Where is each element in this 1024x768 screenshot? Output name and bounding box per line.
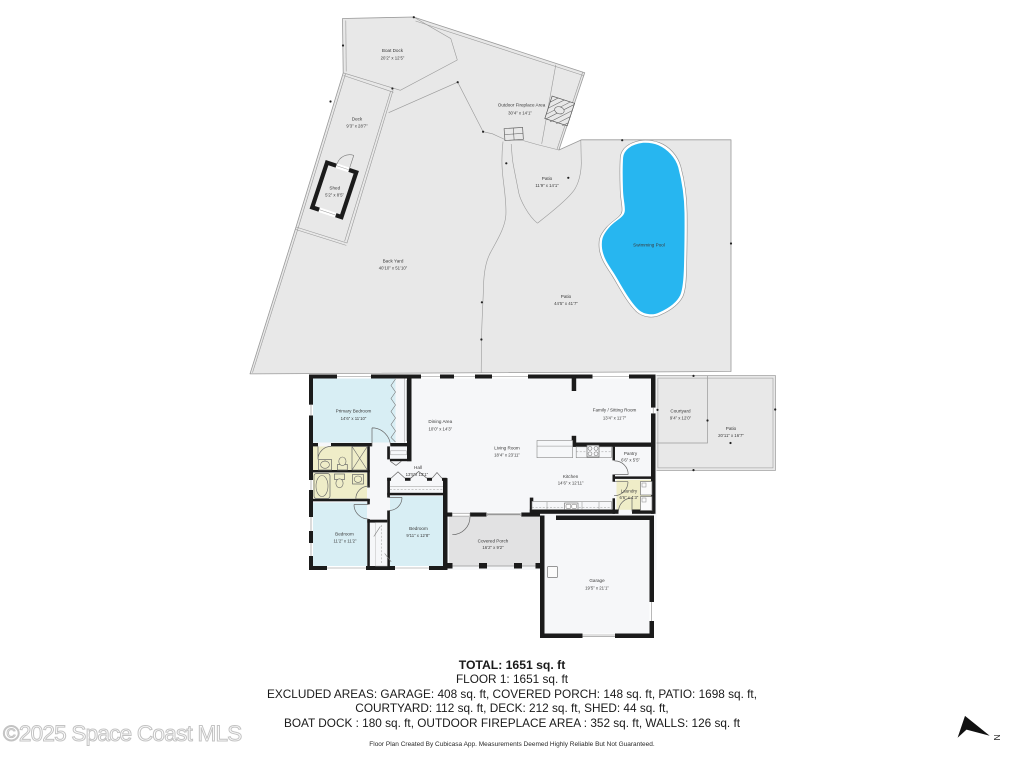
svg-text:6’6” x 5’5”: 6’6” x 5’5” bbox=[621, 457, 640, 462]
svg-text:Laundry: Laundry bbox=[621, 488, 638, 493]
svg-text:14’6” x 12’11”: 14’6” x 12’11” bbox=[558, 480, 584, 485]
svg-text:Family / Sitting Room: Family / Sitting Room bbox=[593, 407, 637, 412]
svg-text:Bedroom: Bedroom bbox=[409, 526, 428, 531]
svg-text:11’2” x 11’2”: 11’2” x 11’2” bbox=[333, 538, 357, 543]
svg-text:40’10” x 51’10”: 40’10” x 51’10” bbox=[379, 265, 408, 270]
svg-text:14’6” x 11’10”: 14’6” x 11’10” bbox=[341, 416, 367, 421]
svg-text:Covered Porch: Covered Porch bbox=[478, 538, 509, 543]
svg-text:Shed: Shed bbox=[329, 185, 340, 190]
svg-text:Primary Bedroom: Primary Bedroom bbox=[336, 408, 372, 413]
svg-text:19’5” x 21’1”: 19’5” x 21’1” bbox=[585, 585, 609, 590]
svg-text:Boat Dock: Boat Dock bbox=[382, 48, 404, 53]
svg-text:Hall: Hall bbox=[414, 465, 422, 470]
svg-text:11’9” x 14’1”: 11’9” x 14’1” bbox=[535, 183, 559, 188]
svg-text:5’2” x 8’5”: 5’2” x 8’5” bbox=[325, 192, 344, 197]
svg-text:18’4” x 23’11”: 18’4” x 23’11” bbox=[494, 453, 520, 458]
svg-text:Bedroom: Bedroom bbox=[335, 531, 354, 536]
svg-text:Garage: Garage bbox=[589, 578, 605, 583]
svg-text:Back Yard: Back Yard bbox=[383, 258, 404, 263]
svg-text:Living Room: Living Room bbox=[494, 445, 520, 450]
svg-text:13’4” x 11’7”: 13’4” x 11’7” bbox=[603, 415, 627, 420]
svg-text:9’4” x 12’0”: 9’4” x 12’0” bbox=[670, 416, 692, 421]
svg-text:44’5” x 41’7”: 44’5” x 41’7” bbox=[554, 301, 578, 306]
svg-text:Kitchen: Kitchen bbox=[563, 474, 579, 479]
svg-text:16’2” x 9’2”: 16’2” x 9’2” bbox=[482, 545, 504, 550]
svg-text:9’3” x 28’7”: 9’3” x 28’7” bbox=[346, 123, 368, 128]
svg-text:Patio: Patio bbox=[561, 294, 572, 299]
svg-text:Swimming Pool: Swimming Pool bbox=[633, 242, 665, 247]
svg-text:9’11” x 12’8”: 9’11” x 12’8” bbox=[406, 533, 430, 538]
svg-text:10’0” x 14’3”: 10’0” x 14’3” bbox=[428, 427, 452, 432]
svg-text:Dining Area: Dining Area bbox=[428, 419, 452, 424]
svg-text:6’6” x 4’3”: 6’6” x 4’3” bbox=[619, 495, 638, 500]
svg-text:Patio: Patio bbox=[542, 176, 553, 181]
svg-text:Patio: Patio bbox=[726, 426, 737, 431]
svg-text:Courtyard: Courtyard bbox=[670, 408, 691, 413]
svg-text:20’2” x 12’5”: 20’2” x 12’5” bbox=[381, 55, 405, 60]
svg-text:Deck: Deck bbox=[352, 116, 363, 121]
svg-text:Pantry: Pantry bbox=[624, 451, 638, 456]
svg-text:Outdoor Fireplace Area: Outdoor Fireplace Area bbox=[498, 102, 546, 107]
svg-text:20’11” x 16’7”: 20’11” x 16’7” bbox=[718, 433, 744, 438]
svg-text:13’5”x 13’1”: 13’5”x 13’1” bbox=[406, 472, 429, 477]
svg-text:30’4” x 14’1”: 30’4” x 14’1” bbox=[508, 110, 532, 115]
